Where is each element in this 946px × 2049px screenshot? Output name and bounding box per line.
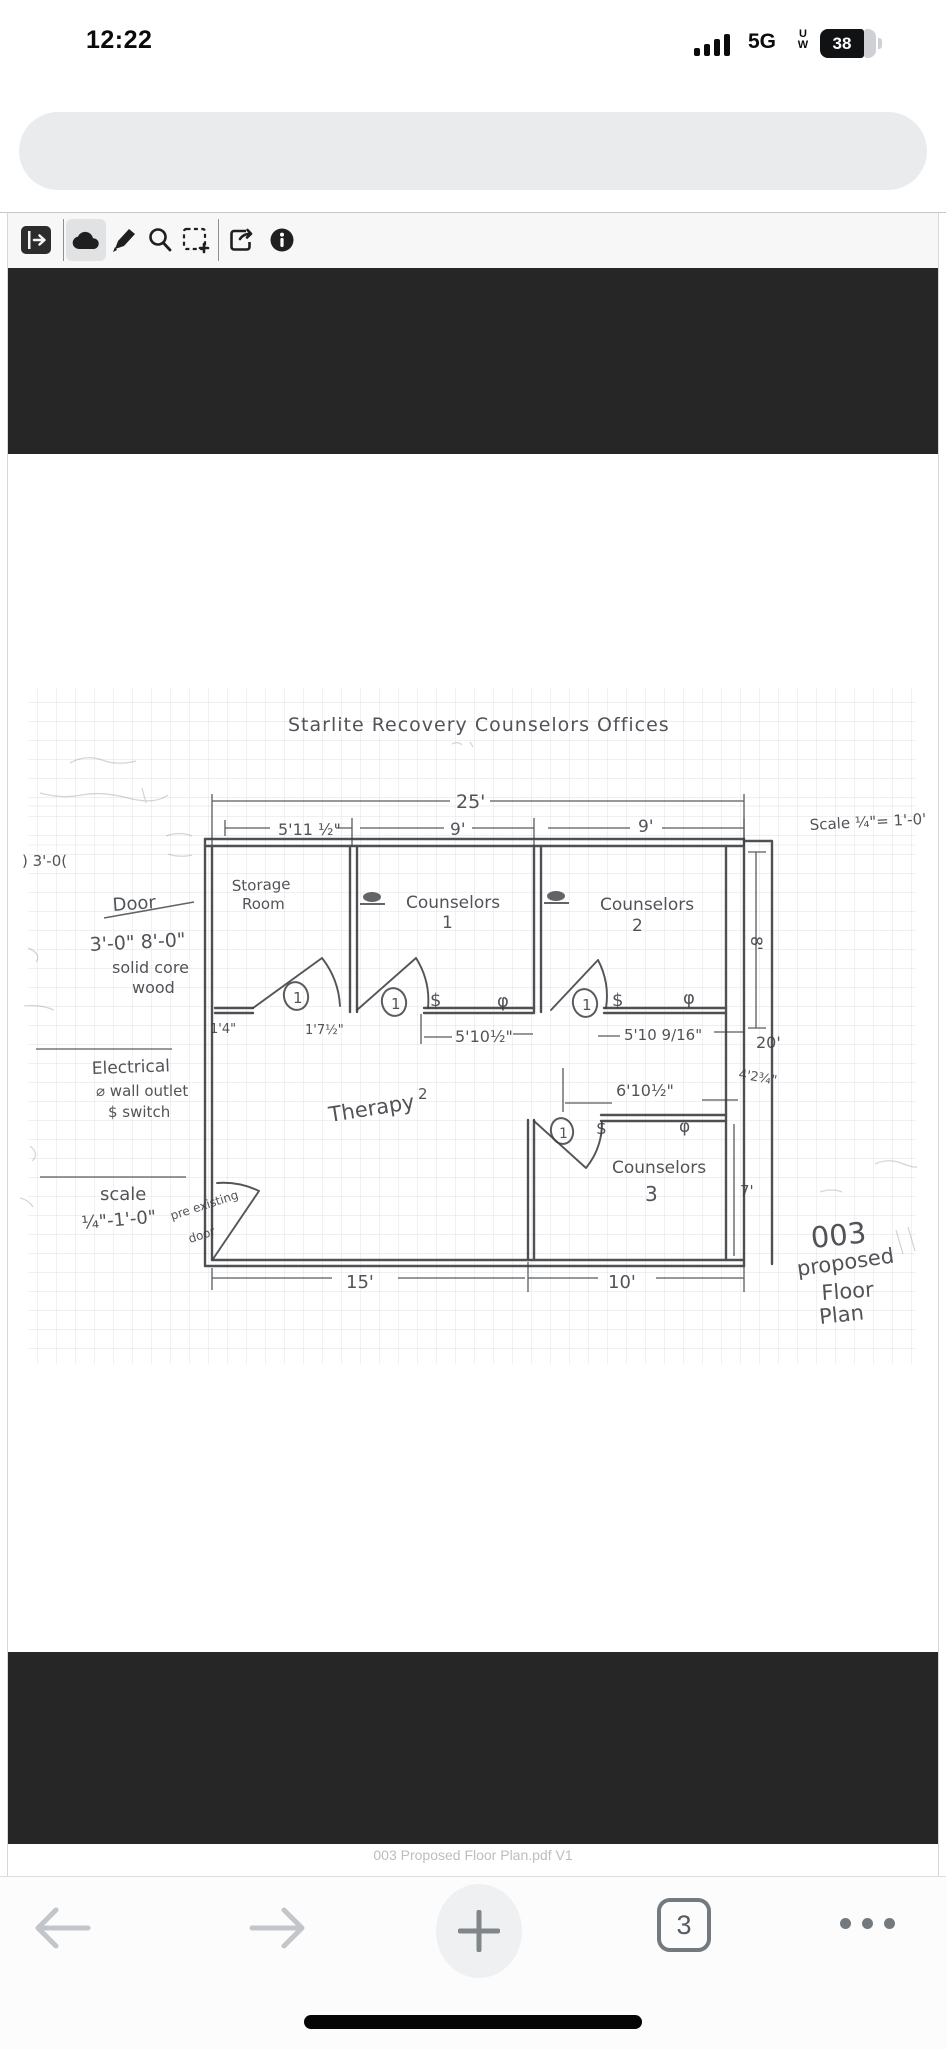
marker-icon bbox=[111, 227, 137, 253]
room-counselors-1-number: 1 bbox=[442, 913, 453, 933]
annotate-button[interactable] bbox=[104, 219, 144, 261]
plus-icon bbox=[458, 1910, 500, 1952]
door-number: 1 bbox=[391, 995, 401, 1013]
dim-5ft10half: 5'10½" bbox=[455, 1027, 513, 1046]
more-options-button[interactable] bbox=[840, 1918, 895, 1929]
export-icon bbox=[229, 227, 259, 253]
room-storage: Storage bbox=[232, 875, 291, 895]
dim-9ft: 9' bbox=[450, 820, 466, 840]
dim-10ft: 10' bbox=[608, 1272, 636, 1293]
home-indicator[interactable] bbox=[304, 2015, 642, 2029]
room-storage: Room bbox=[242, 895, 285, 913]
plan-title: Starlite Recovery Counselors Offices bbox=[288, 714, 670, 736]
door-number: 1 bbox=[582, 996, 592, 1014]
status-bar: 12:22 5G U W 38 bbox=[0, 0, 946, 92]
document-caption: 003 Proposed Floor Plan.pdf V1 bbox=[0, 1847, 946, 1863]
dim-1ft7: 1'7½" bbox=[305, 1023, 344, 1038]
search-button[interactable] bbox=[140, 219, 180, 261]
info-icon bbox=[269, 227, 295, 253]
note-switch: $ switch bbox=[108, 1103, 170, 1121]
info-button[interactable] bbox=[262, 219, 302, 261]
cloud-button[interactable] bbox=[66, 219, 106, 261]
battery-icon: 38 bbox=[820, 29, 878, 58]
viewer-border bbox=[938, 213, 939, 1876]
back-button[interactable] bbox=[30, 1904, 94, 1952]
pdf-toolbar bbox=[8, 213, 938, 268]
note-scale: scale bbox=[100, 1184, 146, 1205]
note-wall-outlet: ⌀ wall outlet bbox=[96, 1082, 188, 1100]
floor-plan-drawing: 1 1 1 1 $ $ $ φ φ φ 25' 5'11 ½" bbox=[8, 454, 938, 1652]
letterbox-bottom bbox=[8, 1652, 938, 1844]
dim-5ft10-9-16: 5'10 9/16" bbox=[624, 1026, 702, 1044]
toolbar-separator bbox=[63, 219, 64, 261]
dim-3ft0-faint: ) 3'-0( bbox=[22, 852, 67, 870]
switch-symbol: $ bbox=[430, 990, 441, 1011]
room-counselors-2: Counselors bbox=[600, 895, 694, 915]
room-therapy-number: 2 bbox=[418, 1085, 428, 1103]
dim-5ft11: 5'11 ½" bbox=[278, 820, 341, 839]
outlet-symbol: φ bbox=[679, 1117, 690, 1137]
outlet-symbol: φ bbox=[497, 991, 509, 1012]
note-wood: wood bbox=[132, 978, 175, 997]
address-bar[interactable]: newbraunfels-tx-us.avolvecloud.com bbox=[19, 112, 927, 190]
dim-15ft: 15' bbox=[346, 1272, 374, 1293]
forward-button[interactable] bbox=[246, 1904, 310, 1952]
battery-percent: 38 bbox=[820, 29, 864, 58]
dim-1ft4: 1'4" bbox=[210, 1022, 236, 1037]
door-number: 1 bbox=[559, 1126, 568, 1142]
letterbox-top bbox=[8, 268, 938, 454]
sidebar-toggle-button[interactable] bbox=[16, 219, 56, 261]
dashed-select-icon bbox=[182, 226, 210, 254]
note-solid-core: solid core bbox=[112, 958, 189, 977]
dim-9ft: 9' bbox=[638, 817, 654, 837]
dim-25ft: 25' bbox=[456, 791, 485, 813]
clock: 12:22 bbox=[86, 26, 152, 55]
snapshot-area-button[interactable] bbox=[176, 219, 216, 261]
dim-8ft: 8' bbox=[747, 936, 766, 951]
export-button[interactable] bbox=[224, 219, 264, 261]
sheet-word-floor: Floor bbox=[821, 1277, 875, 1305]
dim-20ft: 20' bbox=[756, 1033, 781, 1052]
room-counselors-1: Counselors bbox=[406, 893, 500, 913]
carrier-label: 5G bbox=[748, 30, 776, 54]
new-tab-button[interactable] bbox=[436, 1884, 522, 1978]
switch-symbol: $ bbox=[596, 1119, 607, 1139]
dim-6ft10half: 6'10½" bbox=[616, 1081, 674, 1100]
signal-strength-icon bbox=[694, 34, 736, 58]
carrier-sub-label: U W bbox=[796, 29, 810, 51]
tabs-button[interactable]: 3 bbox=[657, 1898, 711, 1952]
room-counselors-3: Counselors bbox=[612, 1158, 706, 1178]
cloud-icon bbox=[72, 230, 100, 250]
toolbar-separator bbox=[218, 219, 219, 261]
switch-symbol: $ bbox=[612, 990, 623, 1011]
room-counselors-3-number: 3 bbox=[645, 1182, 658, 1206]
graph-paper bbox=[28, 688, 916, 1364]
dim-7ft: 7' bbox=[740, 1182, 754, 1200]
door-number: 1 bbox=[293, 989, 303, 1007]
outlet-symbol: φ bbox=[683, 988, 695, 1009]
note-electrical: Electrical bbox=[91, 1056, 170, 1079]
room-counselors-2-number: 2 bbox=[632, 916, 643, 936]
pdf-page[interactable]: 1 1 1 1 $ $ $ φ φ φ 25' 5'11 ½" bbox=[8, 454, 938, 1652]
tab-count: 3 bbox=[676, 1910, 691, 1941]
sheet-word-plan: Plan bbox=[818, 1300, 865, 1329]
search-icon bbox=[147, 227, 173, 253]
